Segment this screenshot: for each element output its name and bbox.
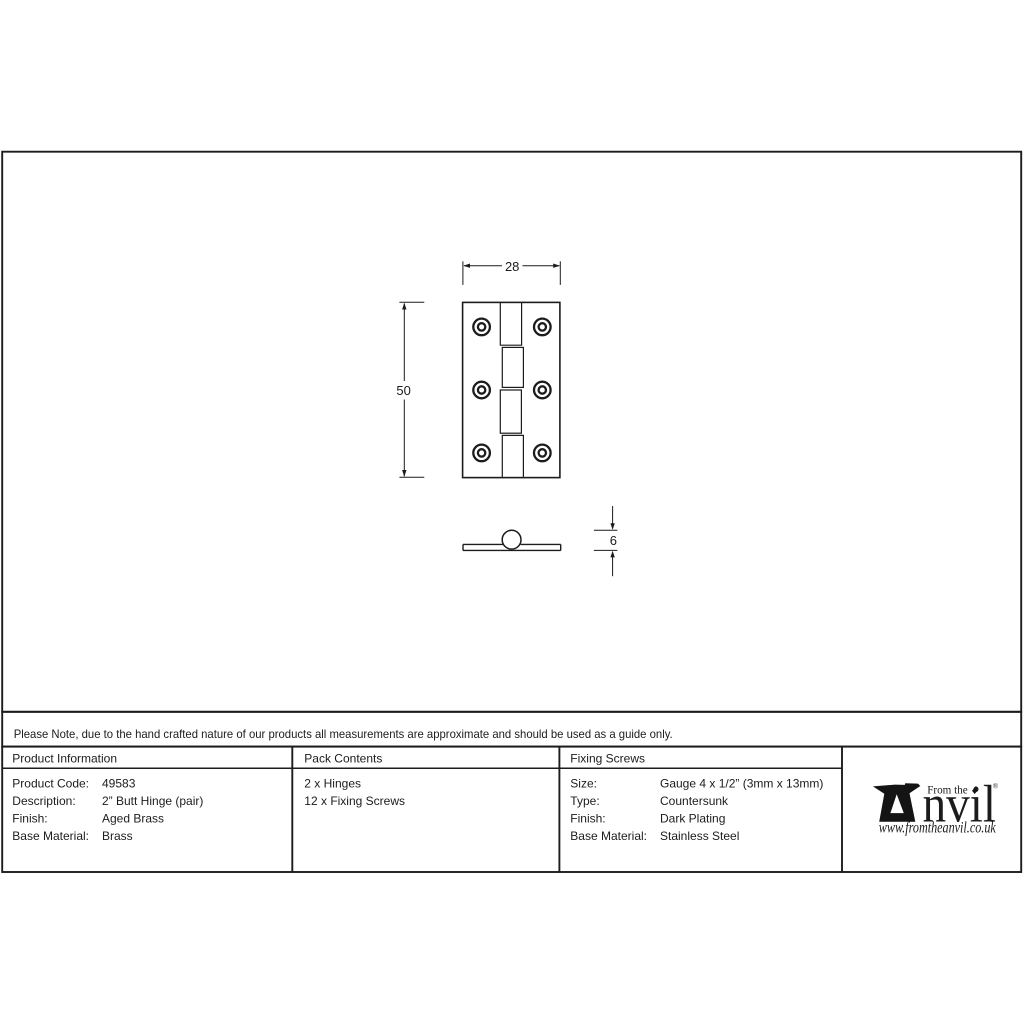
svg-text:50: 50 [396,383,410,398]
svg-text:Size:: Size: [570,777,597,791]
svg-text:Base Material:: Base Material: [12,829,89,843]
svg-text:From the: From the [927,783,968,797]
svg-text:Stainless Steel: Stainless Steel [660,829,739,843]
svg-text:2” Butt Hinge (pair): 2” Butt Hinge (pair) [102,794,203,808]
svg-text:Aged Brass: Aged Brass [102,812,164,826]
svg-text:Fixing Screws: Fixing Screws [570,751,645,765]
svg-text:®: ® [993,782,999,791]
svg-text:Pack Contents: Pack Contents [304,751,382,765]
svg-text:Base Material:: Base Material: [570,829,647,843]
svg-text:2 x Hinges: 2 x Hinges [304,777,361,791]
svg-text:Countersunk: Countersunk [660,794,729,808]
svg-text:Brass: Brass [102,829,133,843]
svg-text:Description:: Description: [12,794,75,808]
svg-text:Type:: Type: [570,794,599,808]
svg-text:www.fromtheanvil.co.uk: www.fromtheanvil.co.uk [879,820,997,837]
svg-text:6: 6 [610,533,617,548]
svg-text:12 x Fixing Screws: 12 x Fixing Screws [304,794,405,808]
svg-text:Product Code:: Product Code: [12,777,89,791]
svg-text:Finish:: Finish: [570,812,605,826]
svg-text:49583: 49583 [102,777,136,791]
svg-text:Finish:: Finish: [12,812,47,826]
svg-text:Dark Plating: Dark Plating [660,812,725,826]
svg-text:Gauge 4 x 1/2” (3mm x 13mm): Gauge 4 x 1/2” (3mm x 13mm) [660,777,823,791]
svg-text:Please Note, due to the hand c: Please Note, due to the hand crafted nat… [14,727,673,741]
svg-text:Product Information: Product Information [12,751,117,765]
svg-text:28: 28 [505,259,519,274]
